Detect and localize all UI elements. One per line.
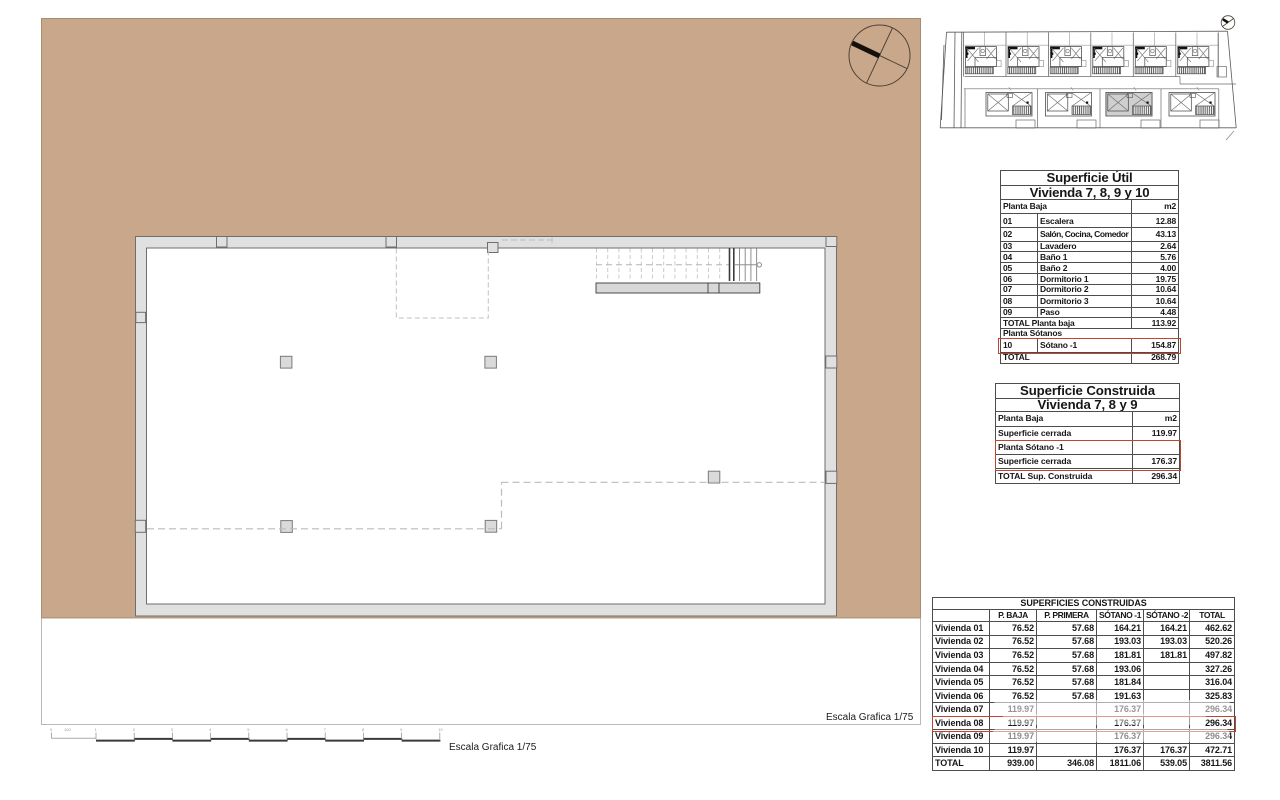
svg-text:100: 100 <box>64 727 71 732</box>
svg-text:2: 2 <box>133 727 136 732</box>
svg-text:8: 8 <box>362 727 365 732</box>
svg-text:3: 3 <box>171 727 174 732</box>
svg-text:0: 0 <box>50 727 53 732</box>
svg-text:7: 7 <box>324 727 327 732</box>
svg-text:4: 4 <box>209 727 212 732</box>
svg-text:9: 9 <box>400 727 403 732</box>
svg-text:1: 1 <box>95 727 98 732</box>
svg-text:5: 5 <box>247 727 250 732</box>
svg-text:10: 10 <box>438 727 443 732</box>
svg-text:6: 6 <box>286 727 289 732</box>
